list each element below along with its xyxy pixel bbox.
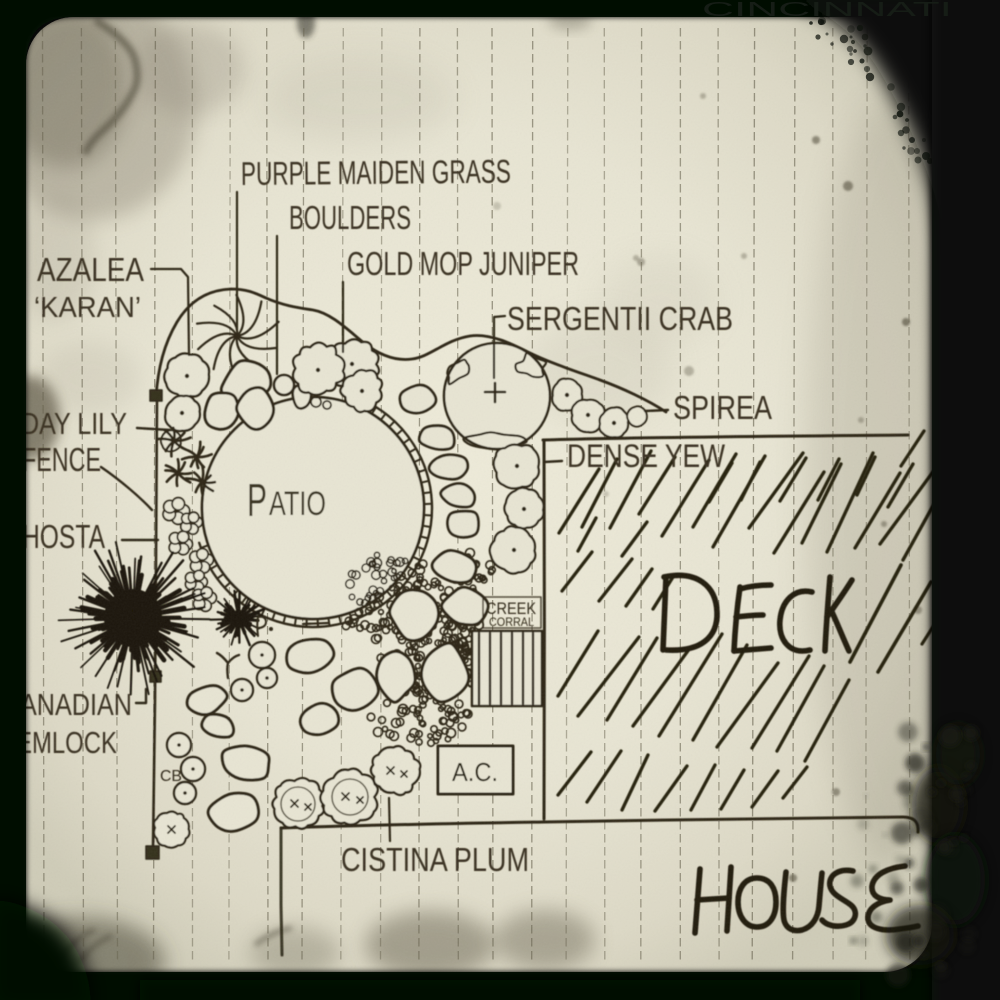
- svg-text:CINCINNATI: CINCINNATI: [702, 0, 952, 21]
